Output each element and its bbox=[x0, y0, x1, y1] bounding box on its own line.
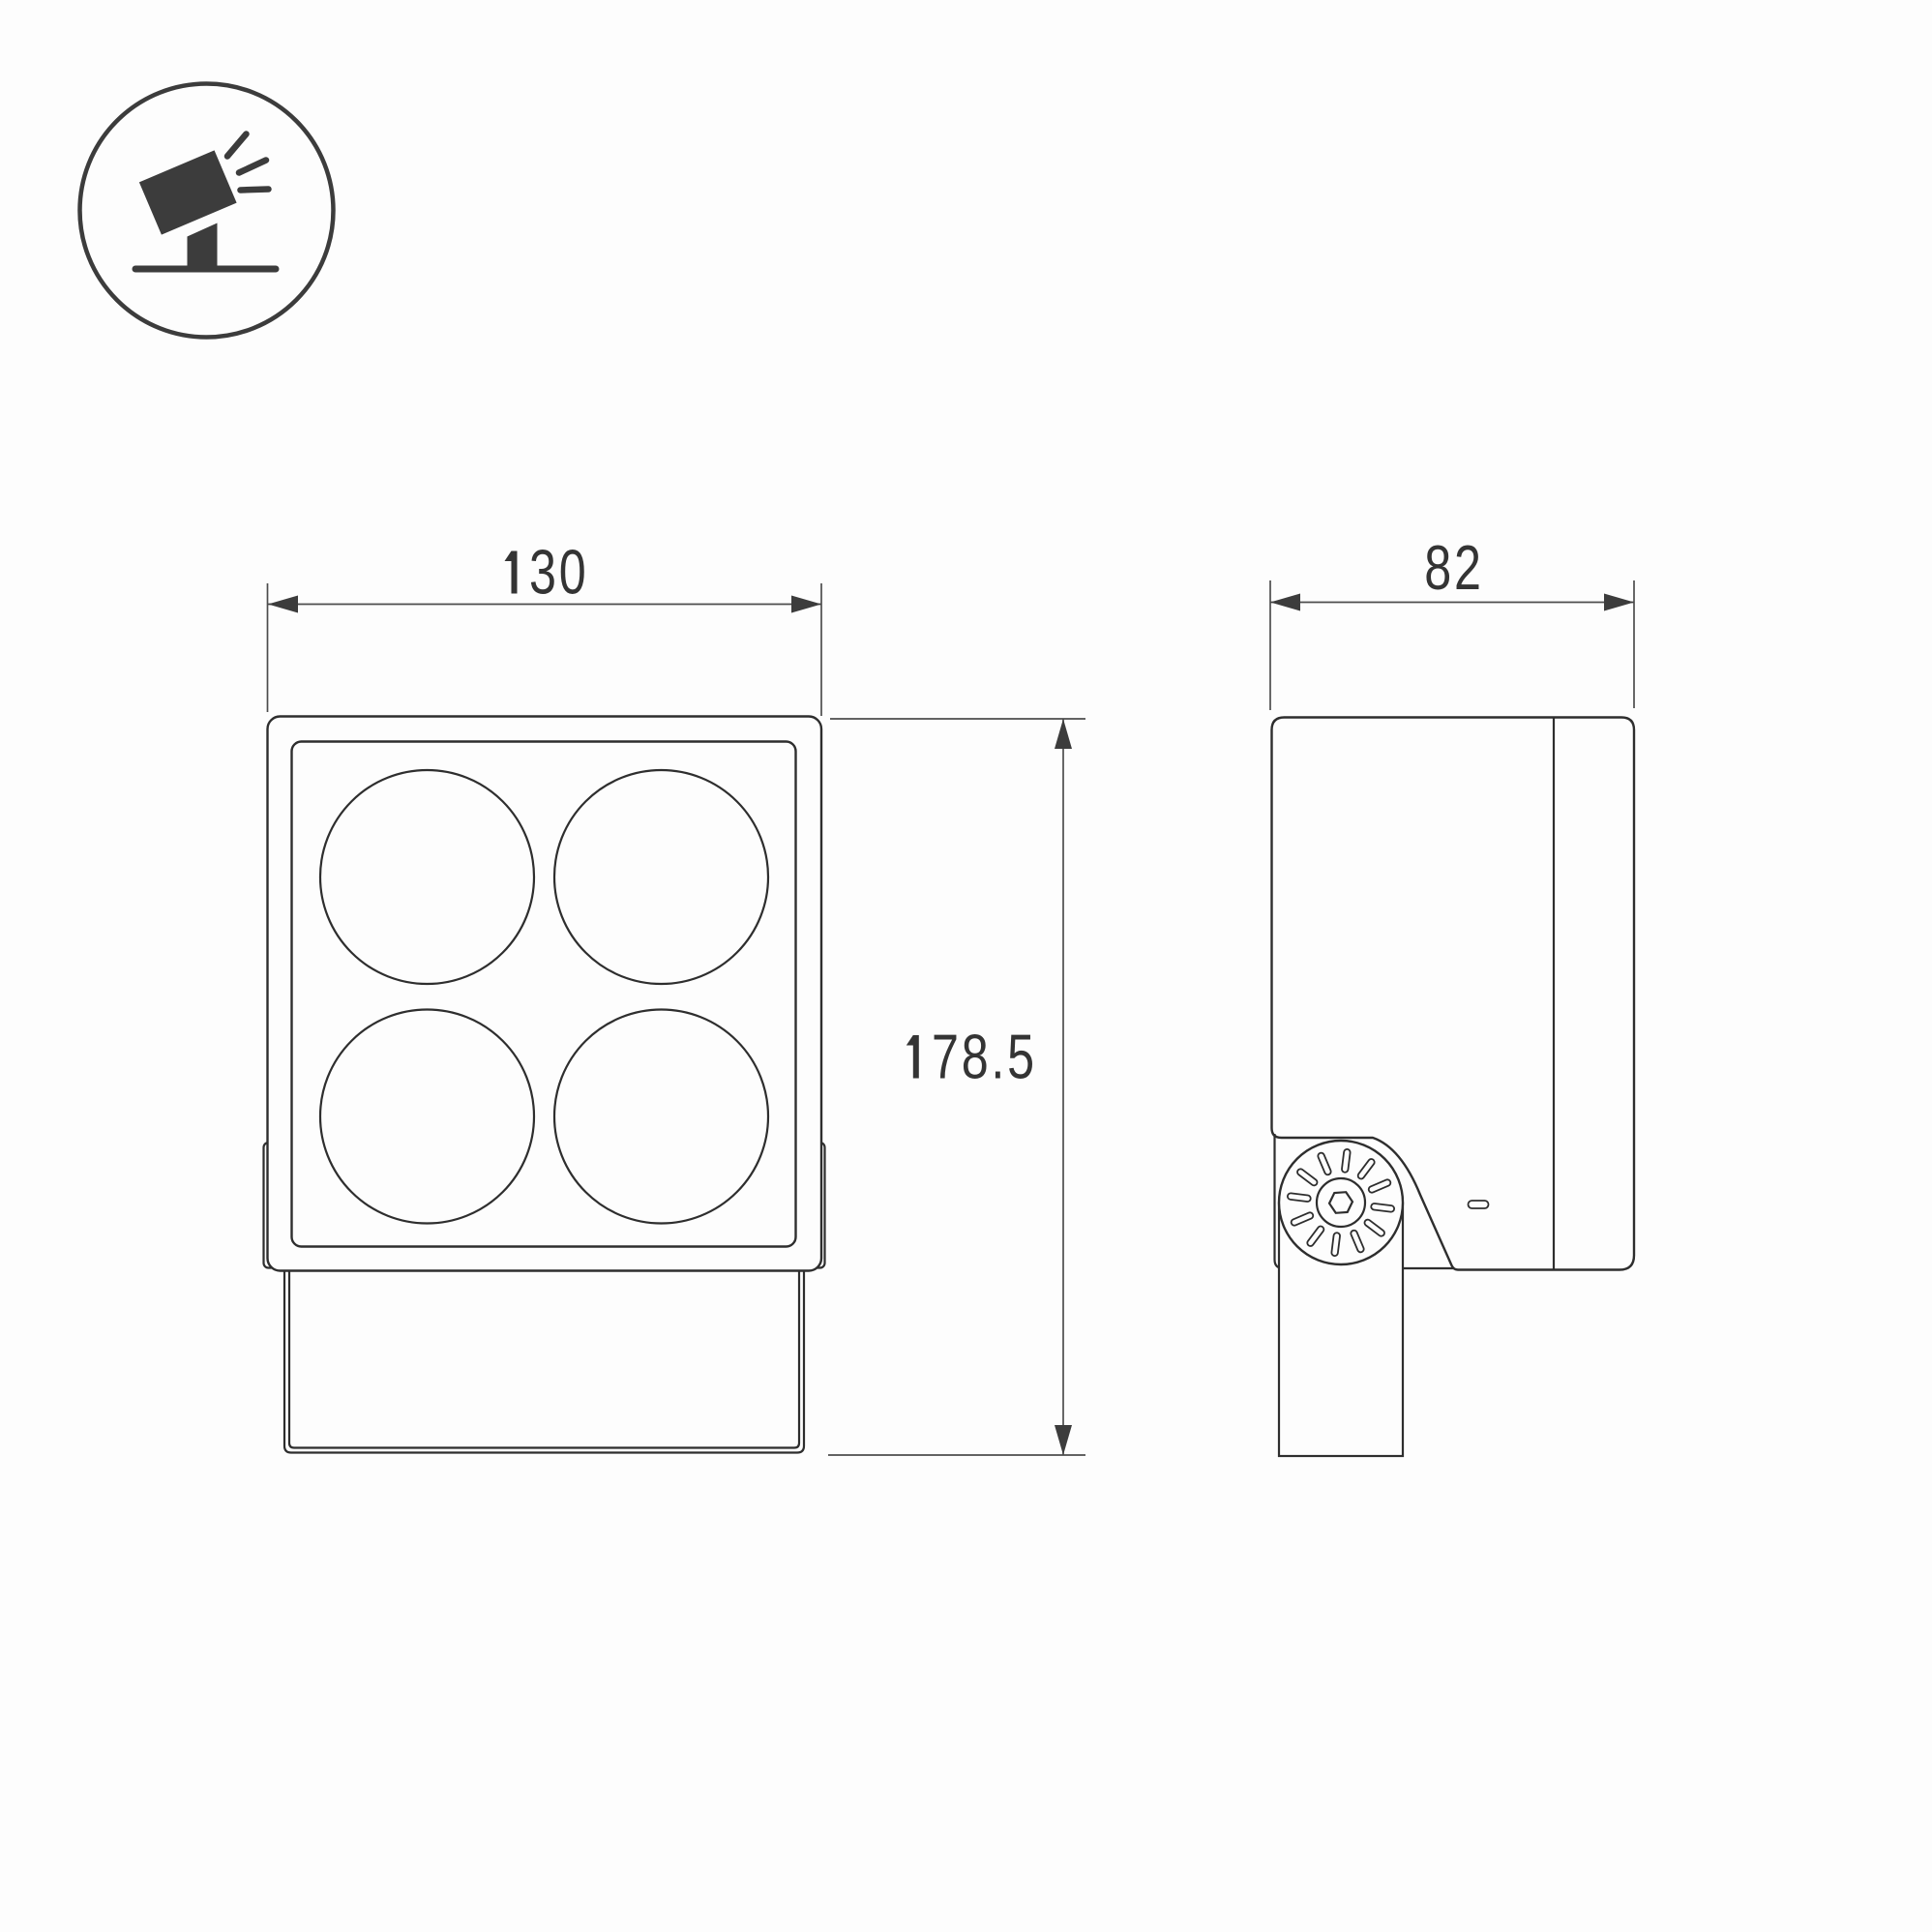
svg-text:82: 82 bbox=[1424, 534, 1483, 603]
svg-text:78.5: 78.5 bbox=[932, 1024, 1037, 1092]
svg-text:30: 30 bbox=[529, 539, 588, 608]
